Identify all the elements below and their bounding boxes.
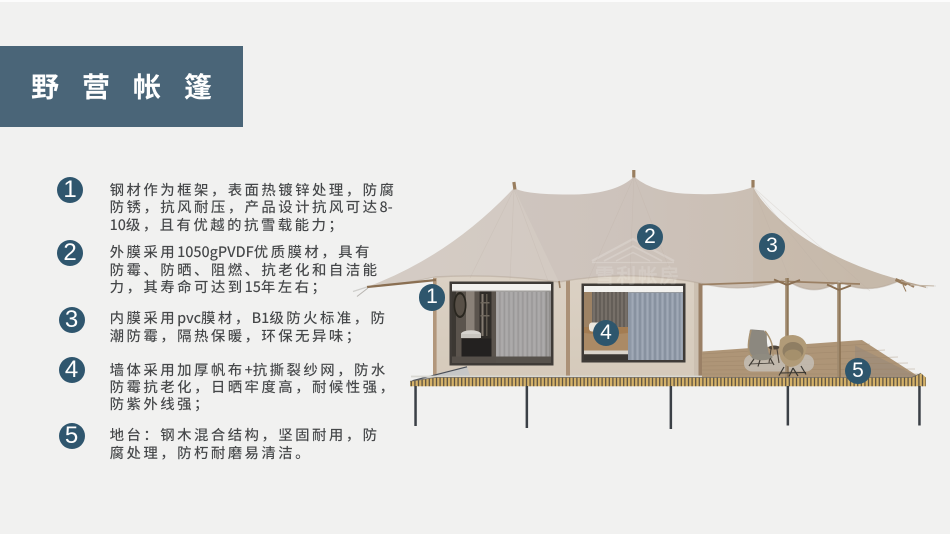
svg-text:XUELIZHANGFANG: XUELIZHANGFANG (595, 285, 686, 294)
